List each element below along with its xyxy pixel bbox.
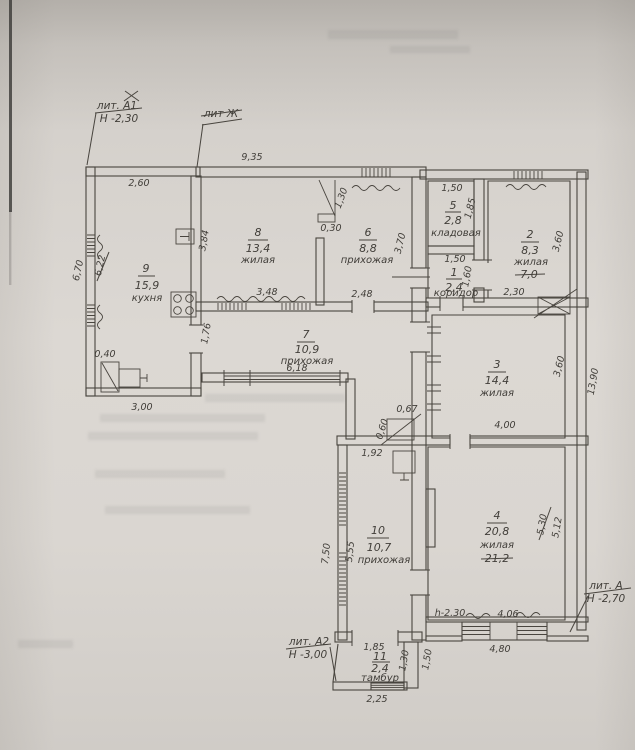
room-9-area: 15,9 [135,279,160,292]
dim-r1-right: 1,60 [460,265,475,288]
dim-flue-width: 0,67 [396,404,417,415]
room-9-name: кухня [132,293,162,304]
room-2-old-area: 7,0 [520,268,538,281]
room-7-number: 7 [303,328,310,341]
dim-kitchen-niche: 0,40 [94,349,115,360]
dim-r2-right: 3,60 [551,230,567,253]
dim-r8-bottom: 3,48 [256,287,277,298]
dim-kitchen-left-outer: 6,70 [71,259,86,282]
dim-r11-right-outer: 1,50 [420,648,435,671]
labels: лит. А1 Н -2,30 лит Ж лит. А Н -2,70 лит… [71,100,626,705]
litera-a1-height: Н -2,30 [100,113,139,125]
window-icon [462,627,490,635]
dim-r11-right-inner: 1,30 [397,649,412,672]
dim-r4-bottom-outer: 4,80 [489,644,510,655]
room-2-area: 8,3 [521,244,539,257]
scan-edge [9,0,12,285]
dim-r8-left: 3,84 [197,229,212,252]
room-10-number: 10 [371,524,385,537]
chimney-box-icon [534,289,577,318]
dim-door-8-6: 1,30 [333,186,351,210]
wavy-line [506,185,546,190]
dim-r7-left: 1,76 [199,322,214,345]
window-icon [339,473,346,525]
room-6-name: прихожая [341,255,394,266]
room-4-name: жилая [479,540,514,551]
window-icons [87,168,547,688]
dim-top-width: 9,35 [241,152,262,163]
dim-kitchen-bottom: 3,00 [131,402,152,413]
dim-r11-bottom: 2,25 [366,694,387,705]
dim-r4-bottom: 4,06 [497,609,518,620]
window-icon [282,303,310,310]
dim-r7-length: 6,18 [286,363,307,374]
stove-icon [171,292,196,317]
room-1-number: 1 [451,266,458,279]
room-3-number: 3 [494,358,501,371]
room-3-name: жилая [479,388,514,399]
room-4-number: 4 [494,509,501,522]
window-icon [87,305,95,326]
room-5-name: кладовая [431,228,481,239]
scanned-page: лит. А1 Н -2,30 лит Ж лит. А Н -2,70 лит… [0,0,635,750]
room-9-number: 9 [143,262,150,275]
room-6-area: 8,8 [359,242,377,255]
window-icon [517,627,547,635]
dim-r5-right: 1,85 [463,197,479,220]
litera-a1-label: лит. А1 [96,100,137,112]
window-icon [514,171,542,179]
room-7-area: 10,9 [295,343,320,356]
dim-r3-bottom: 4,00 [494,420,515,431]
door-sill-icon [371,685,404,687]
dim-flue-height: 0,60 [374,417,391,441]
boiler-icon [119,369,147,387]
dim-r10-top: 1,92 [361,448,382,459]
dim-r4-right: 5,12 [550,516,565,539]
window-icon [218,303,246,310]
dim-door-8-6-jamb: 0,30 [320,223,341,234]
room-6-number: 6 [365,226,372,239]
room-8-name: жилая [240,255,275,266]
room-8-area: 13,4 [246,242,271,255]
opening-rail-icon [224,376,340,380]
room-10-area: 10,7 [367,541,392,554]
room-11-name: тамбур [361,672,399,684]
room-5-number: 5 [450,199,457,212]
room-2-number: 2 [527,228,534,241]
room-4-old-area: 21,2 [485,552,510,565]
dim-r6-right: 3,70 [393,232,409,255]
dim-r4-right-old: 5,30 [535,513,550,536]
room-10-name: прихожая [358,555,411,566]
wavy-line [352,186,400,191]
litera-zh-label: лит Ж [203,108,239,120]
room-4-area: 20,8 [485,525,510,538]
room-1-name: коридор [434,288,478,299]
dim-r11-top: 1,85 [363,642,384,653]
height-note: h-2.30 [435,608,466,619]
litera-a-label: лит. А [588,580,623,592]
window-icon [87,235,95,256]
dim-r2-bottom: 2,30 [503,287,524,298]
dim-r6-bottom: 2,48 [351,289,372,300]
window-icon [362,168,390,177]
dim-r10-left-outer: 7,50 [320,543,333,565]
litera-a2-height: Н -3,00 [289,649,328,661]
wavy-line [466,614,490,619]
floor-plan-scan: лит. А1 Н -2,30 лит Ж лит. А Н -2,70 лит… [0,0,635,750]
dim-kitchen-top: 2,60 [128,178,149,189]
dim-r10-left-inner: 5,55 [344,541,357,563]
room-8-number: 8 [255,226,262,239]
dim-right-total: 13,90 [586,367,602,396]
opening-ticks [189,260,492,646]
dim-r1-top: 1,50 [444,254,465,265]
dim-r5-top: 1,50 [441,183,462,194]
litera-a-height: Н -2,70 [587,593,626,605]
room-3-area: 14,4 [485,374,510,387]
door-leaf-icon [318,180,335,222]
room-2-name: жилая [513,257,548,268]
wavy-line [98,305,103,329]
room-5-area: 2,8 [444,214,462,227]
litera-a2-label: лит. А2 [288,636,330,648]
